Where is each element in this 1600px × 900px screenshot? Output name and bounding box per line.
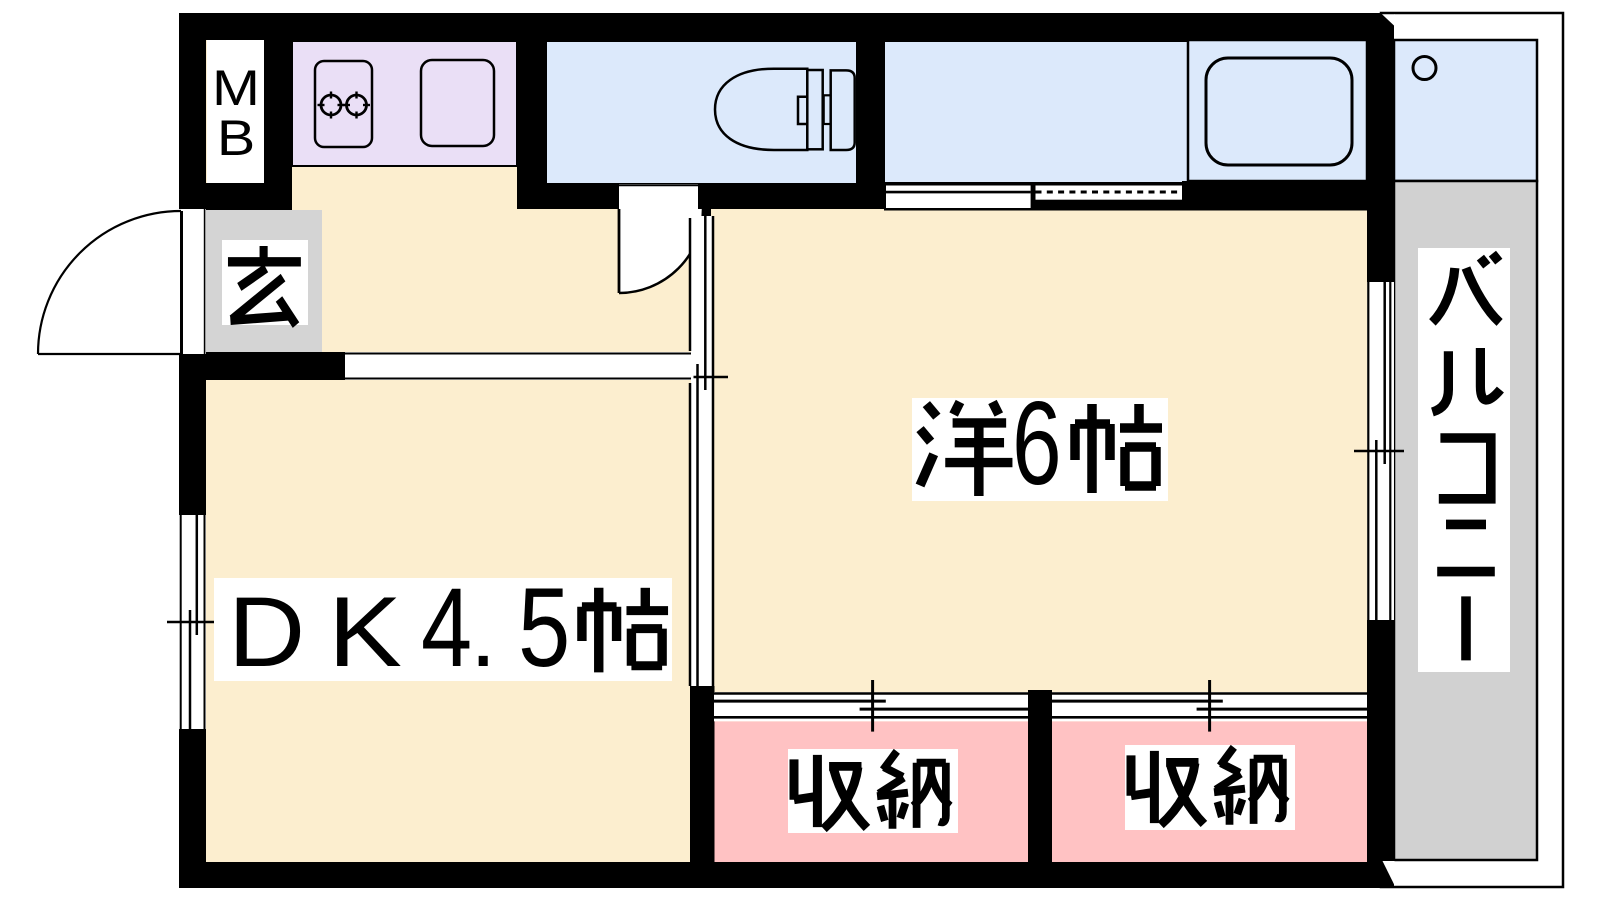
svg-text:5: 5 [518,564,570,690]
svg-text:B: B [217,110,255,166]
svg-text:M: M [212,60,260,116]
svg-text:D: D [228,577,305,687]
svg-text:K: K [328,577,402,687]
svg-text:6: 6 [1012,378,1062,510]
svg-text:4: 4 [421,564,472,690]
svg-text:.: . [470,581,496,687]
